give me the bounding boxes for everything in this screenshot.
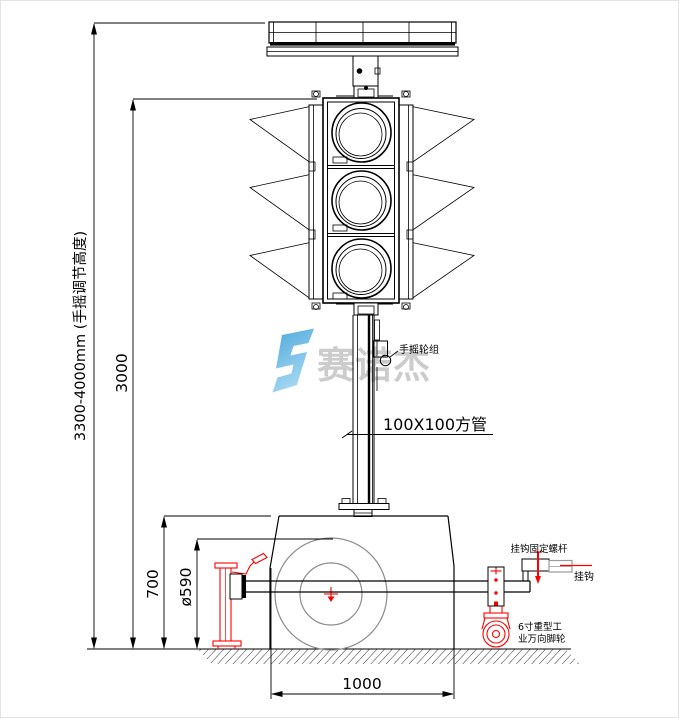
crank-callout-label: 手摇轮组 (399, 343, 439, 356)
brand-logo-icon (273, 329, 315, 393)
panel-mast (353, 56, 380, 86)
jack-stand (213, 554, 267, 650)
dim-wheel-diameter-label: ø590 (177, 567, 195, 606)
wheel-center-mark (324, 587, 338, 602)
pole-callout: 100X100方管 (342, 415, 493, 438)
dim-base-height: 700 (144, 516, 271, 648)
pole-callout-label: 100X100方管 (383, 415, 487, 434)
dim-wheel-diameter: ø590 (177, 539, 333, 648)
mobile-traffic-signal-drawing: 赛诺杰 (1, 1, 679, 718)
trailer-wheel (275, 538, 387, 650)
pole-base-flange (339, 499, 389, 517)
watermark: 赛诺杰 (273, 329, 432, 393)
callout-labels: 手摇轮组 100X100方管 挂钩固定螺杆 挂钩 6寸重型工 业万向脚轮 (342, 343, 594, 645)
hook-tube (549, 561, 572, 573)
signal-lamp-red (332, 103, 391, 163)
caster-callout-line2: 业万向脚轮 (518, 633, 566, 645)
ground (87, 649, 580, 664)
dim-mast-height-label: 3000 (113, 353, 131, 392)
signal-lamp-yellow (332, 171, 391, 231)
dim-overall-height-label: 3300-4000mm (手摇调节高度) (72, 231, 89, 441)
dim-base-length-label: 1000 (342, 675, 381, 693)
top-lug-hole (364, 86, 368, 90)
dim-base-length: 1000 (271, 566, 454, 699)
signal-lamp-green (332, 239, 391, 299)
caster-callout-line1: 6寸重型工 (518, 621, 563, 633)
swivel-caster (482, 567, 510, 647)
solar-panel (267, 22, 458, 56)
side-visors (250, 107, 474, 299)
caster-callout: 6寸重型工 业万向脚轮 (518, 621, 566, 645)
dim-base-height-label: 700 (144, 569, 162, 599)
dim-overall-height: 3300-4000mm (手摇调节高度) (72, 23, 265, 648)
hook-bolt-callout-label: 挂钩固定螺杆 (510, 543, 568, 555)
ground-hatching (198, 650, 580, 665)
traffic-light-head (250, 86, 474, 315)
trailer-body (270, 516, 454, 649)
hook-callout-label: 挂钩 (574, 570, 594, 583)
tow-bar-assembly (244, 552, 592, 592)
technical-drawing-canvas: 赛诺杰 (0, 0, 679, 718)
